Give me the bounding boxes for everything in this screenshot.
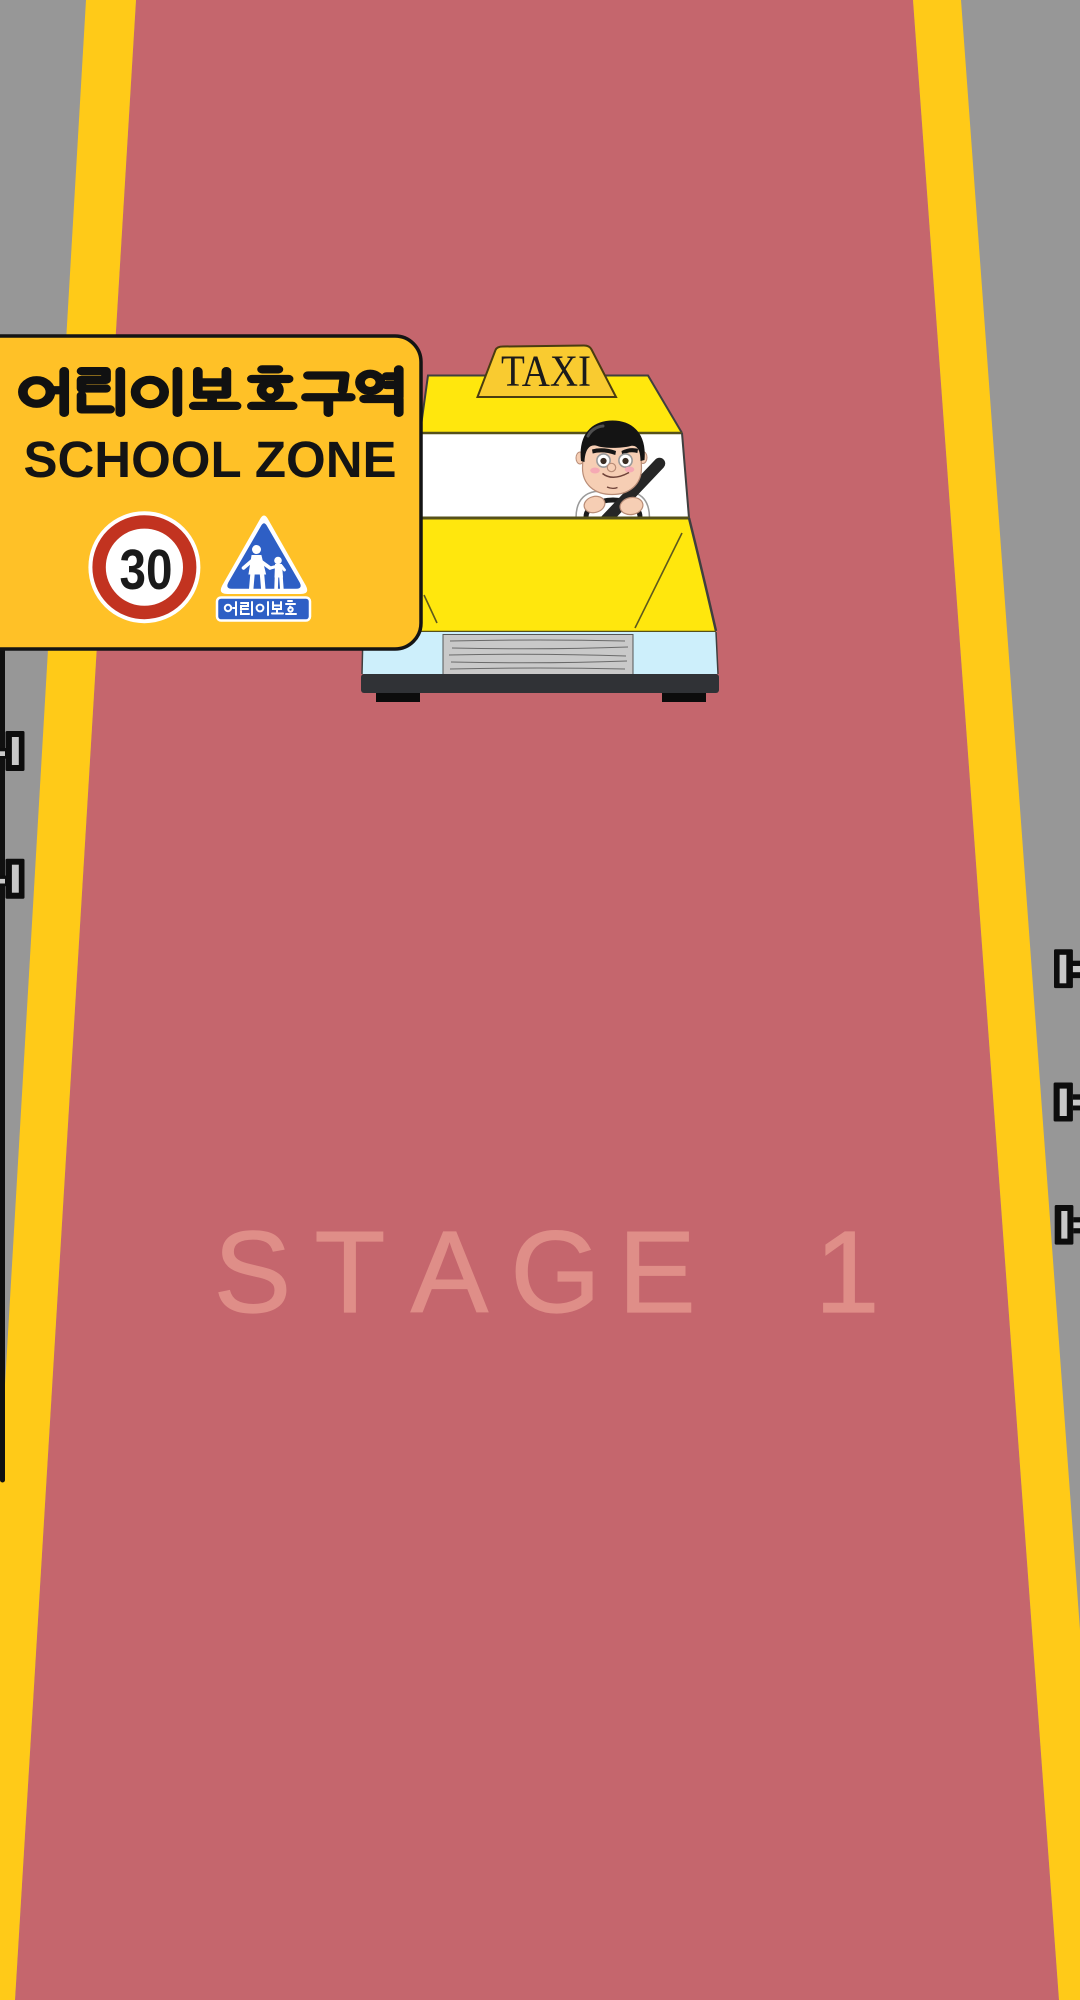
svg-text:SCHOOL ZONE: SCHOOL ZONE xyxy=(23,431,396,488)
svg-text:30: 30 xyxy=(120,538,173,602)
svg-text:TAXI: TAXI xyxy=(501,347,591,396)
